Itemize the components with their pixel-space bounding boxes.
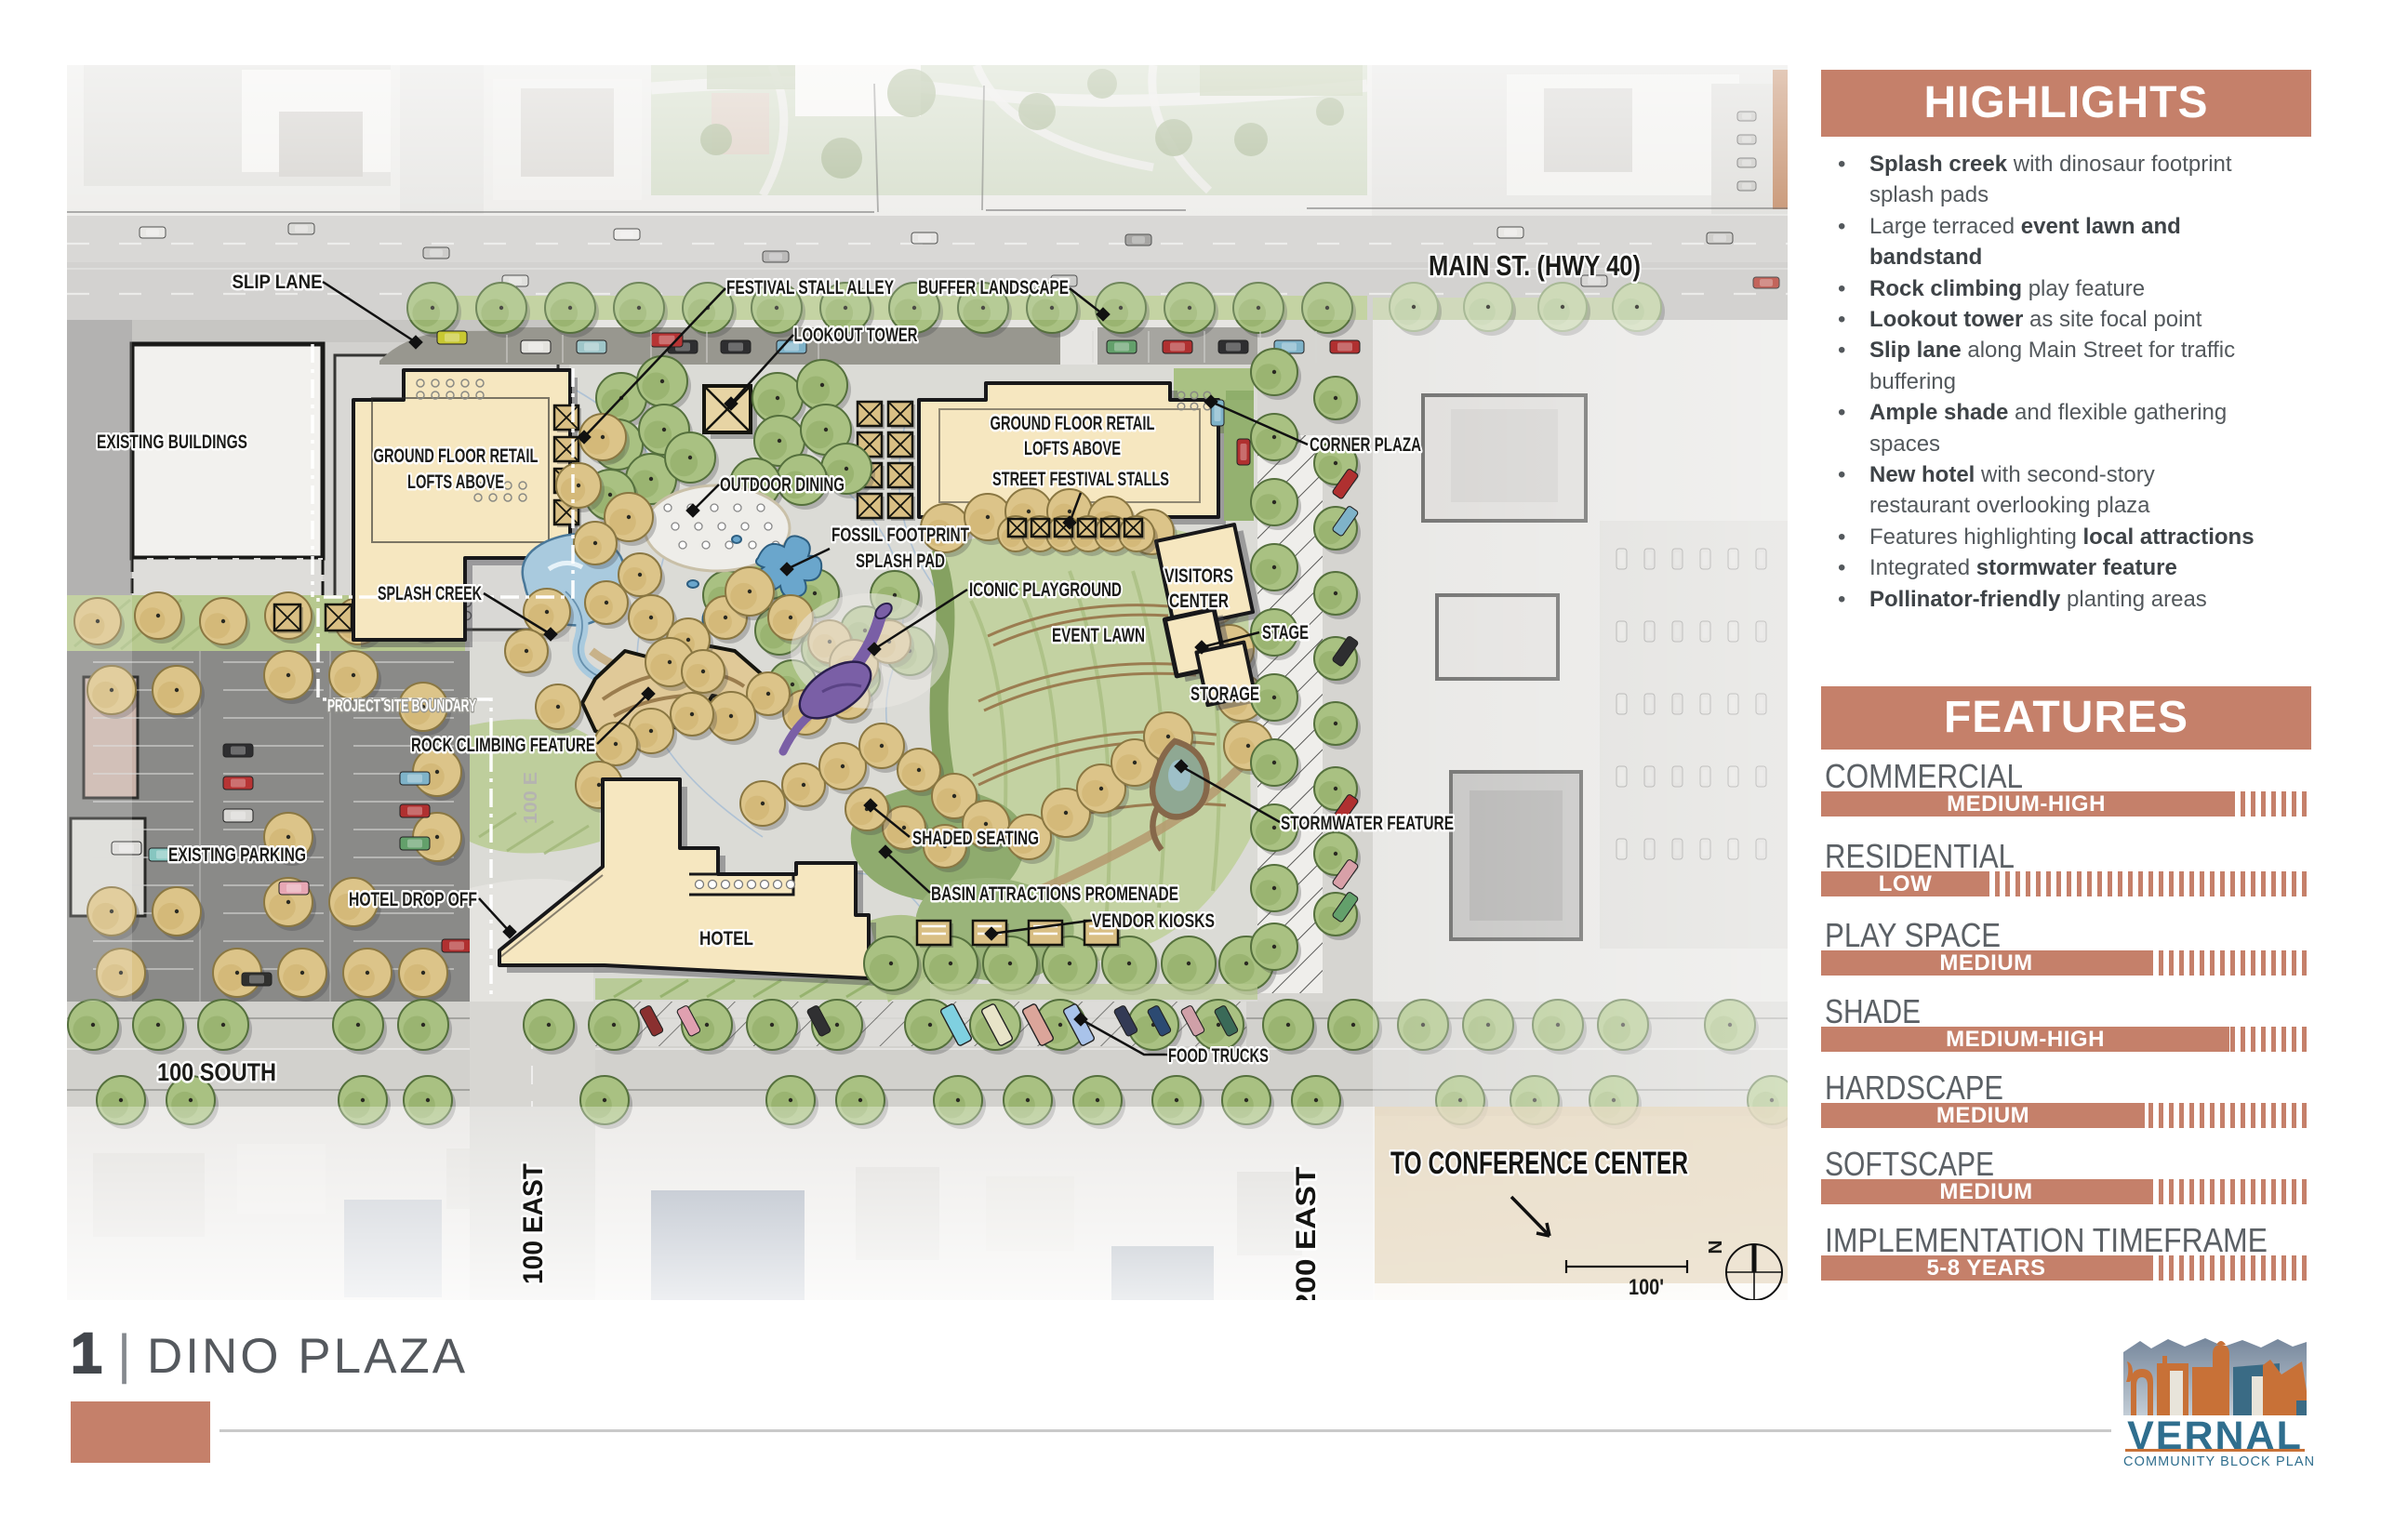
svg-text:VENDOR KIOSKS: VENDOR KIOSKS <box>1092 910 1215 932</box>
svg-text:LOOKOUT TOWER: LOOKOUT TOWER <box>794 325 918 346</box>
svg-text:LOFTS ABOVE: LOFTS ABOVE <box>407 471 504 493</box>
svg-text:100 E: 100 E <box>521 772 541 824</box>
svg-text:STORMWATER FEATURE: STORMWATER FEATURE <box>1281 813 1454 834</box>
svg-text:100 EAST: 100 EAST <box>518 1163 549 1284</box>
svg-text:HOTEL DROP OFF: HOTEL DROP OFF <box>349 889 477 910</box>
svg-text:SLIP LANE: SLIP LANE <box>233 272 323 293</box>
svg-text:SPLASH CREEK: SPLASH CREEK <box>378 583 482 604</box>
svg-text:TO CONFERENCE CENTER: TO CONFERENCE CENTER <box>1390 1146 1688 1181</box>
svg-text:HOTEL: HOTEL <box>699 928 753 949</box>
svg-text:CORNER PLAZA: CORNER PLAZA <box>1310 434 1421 456</box>
svg-text:N: N <box>1706 1241 1726 1255</box>
svg-text:EXISTING BUILDINGS: EXISTING BUILDINGS <box>97 431 247 453</box>
svg-text:BUFFER LANDSCAPE: BUFFER LANDSCAPE <box>918 277 1069 299</box>
svg-text:SPLASH PAD: SPLASH PAD <box>856 551 945 572</box>
svg-text:FESTIVAL STALL ALLEY: FESTIVAL STALL ALLEY <box>726 277 894 299</box>
svg-text:ROCK CLIMBING FEATURE: ROCK CLIMBING FEATURE <box>411 735 595 756</box>
svg-text:PROJECT SITE BOUNDARY: PROJECT SITE BOUNDARY <box>327 697 476 715</box>
svg-text:CENTER: CENTER <box>1169 591 1229 612</box>
svg-text:100 SOUTH: 100 SOUTH <box>157 1058 276 1086</box>
svg-text:LOFTS ABOVE: LOFTS ABOVE <box>1024 438 1121 459</box>
svg-text:FOOD TRUCKS: FOOD TRUCKS <box>1168 1045 1269 1067</box>
svg-text:EXISTING PARKING: EXISTING PARKING <box>168 844 306 866</box>
svg-text:GROUND FLOOR RETAIL: GROUND FLOOR RETAIL <box>991 413 1155 434</box>
svg-text:STORAGE: STORAGE <box>1190 684 1259 705</box>
svg-text:OUTDOOR DINING: OUTDOOR DINING <box>720 474 845 496</box>
svg-text:100': 100' <box>1629 1275 1664 1300</box>
svg-text:200 EAST: 200 EAST <box>1291 1167 1322 1301</box>
svg-text:FOSSIL FOOTPRINT: FOSSIL FOOTPRINT <box>831 524 969 546</box>
svg-text:SHADED SEATING: SHADED SEATING <box>912 828 1039 849</box>
svg-text:EVENT LAWN: EVENT LAWN <box>1052 625 1145 646</box>
svg-text:BASIN ATTRACTIONS PROMENADE: BASIN ATTRACTIONS PROMENADE <box>931 883 1178 905</box>
svg-text:MAIN ST. (HWY 40): MAIN ST. (HWY 40) <box>1429 249 1641 282</box>
svg-text:ICONIC PLAYGROUND: ICONIC PLAYGROUND <box>969 579 1122 601</box>
svg-text:STREET FESTIVAL STALLS: STREET FESTIVAL STALLS <box>992 469 1169 490</box>
svg-text:STAGE: STAGE <box>1262 622 1309 644</box>
svg-text:VISITORS: VISITORS <box>1164 565 1233 587</box>
svg-text:GROUND FLOOR RETAIL: GROUND FLOOR RETAIL <box>374 445 539 467</box>
